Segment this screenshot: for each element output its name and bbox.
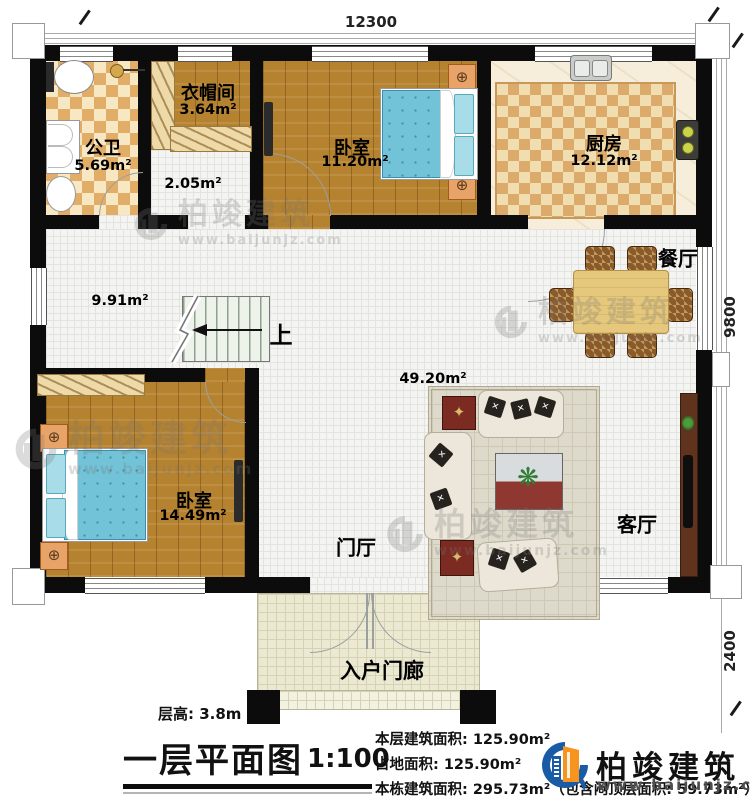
dimension-line	[716, 45, 717, 593]
plan-title: 一层平面图	[123, 733, 303, 782]
dimension-tick	[708, 7, 720, 22]
bedroom-bottom-threshold	[205, 368, 245, 382]
pillow	[454, 94, 474, 134]
floor-drain-icon	[110, 64, 124, 78]
wall-row	[330, 215, 491, 229]
window	[31, 268, 47, 325]
porch-column-left	[247, 690, 280, 724]
dimension-line	[30, 38, 712, 39]
dimension-top: 12300	[345, 13, 397, 31]
room-area-bedroom-top: 11.20m²	[321, 154, 388, 170]
plant-icon	[682, 416, 694, 430]
stove-icon	[676, 120, 699, 160]
floor-height-label: 层高: 3.8m	[158, 703, 241, 724]
basin-icon	[46, 176, 76, 212]
wall-bedroom-bottom-right	[245, 368, 259, 593]
end-table: ✦	[440, 540, 474, 576]
room-label-foyer: 门厅	[336, 532, 376, 561]
room-area-hall: 9.91m²	[91, 293, 148, 309]
title-underline	[123, 784, 372, 789]
dining-chair	[667, 288, 693, 322]
tv-icon	[264, 102, 273, 156]
room-area-bathroom: 5.69m²	[74, 158, 131, 174]
stairs-arrow-icon	[192, 324, 207, 336]
room-label-porch: 入户门廊	[340, 655, 424, 685]
exterior-platform	[710, 565, 742, 599]
entrance-door-leaf	[366, 593, 368, 649]
bath-threshold	[99, 215, 142, 229]
entrance-threshold	[310, 577, 430, 593]
wall-row	[138, 215, 188, 229]
shower-arc	[48, 146, 73, 168]
exterior-platform	[695, 23, 730, 59]
wall-row	[30, 215, 99, 229]
stairs-direction-line	[206, 329, 262, 331]
room-label-dining: 餐厅	[658, 243, 698, 272]
dining-chair	[585, 246, 615, 272]
dining-chair	[627, 246, 657, 272]
dining-chair	[585, 332, 615, 358]
room-label-living: 客厅	[617, 509, 657, 538]
dining-table	[573, 270, 669, 334]
company-logo-url: www.baijunjz.com	[597, 776, 750, 794]
floor-plan-sheet: 12300 9800 2400	[0, 0, 750, 804]
porch-step	[278, 690, 464, 710]
dimension-right-main: 9800	[721, 290, 739, 344]
porch-column-right	[460, 690, 496, 724]
company-logo-icon	[538, 738, 592, 794]
shower-arc	[48, 124, 73, 146]
exterior-platform	[12, 568, 45, 605]
toilet-icon	[54, 60, 94, 94]
toilet-tank	[46, 62, 54, 92]
sink-basin	[574, 60, 590, 77]
dimension-line	[30, 43, 712, 44]
window	[85, 578, 205, 594]
wall-right-lower	[696, 350, 712, 593]
closet-horizontal	[170, 126, 252, 152]
burner	[682, 126, 694, 138]
company-logo	[538, 738, 592, 798]
dimension-tick	[730, 701, 742, 716]
dining-chair	[549, 288, 575, 322]
plant-icon: ❋	[514, 464, 542, 492]
dimension-right-porch: 2400	[721, 624, 739, 678]
exterior-platform	[712, 352, 730, 387]
window	[312, 46, 428, 62]
end-table: ✦	[442, 396, 476, 430]
wall-left-upper	[30, 45, 46, 268]
kitchen-sink-icon	[570, 55, 612, 81]
window	[697, 247, 713, 350]
room-area-small-hall: 2.05m²	[164, 176, 221, 192]
dining-chair	[627, 332, 657, 358]
wall-bottom	[668, 577, 712, 593]
stairs-up-label: 上	[270, 316, 293, 350]
room-area-kitchen: 12.12m²	[570, 153, 637, 169]
bedroom-top-threshold	[268, 215, 330, 229]
dimension-line	[30, 33, 712, 34]
burner	[682, 142, 694, 154]
bed-mattress	[382, 90, 446, 178]
nightstand: ⊕	[40, 542, 68, 570]
entrance-door-leaf	[372, 593, 374, 649]
hall-threshold	[188, 215, 245, 229]
wall-kitchen-bottom	[604, 215, 712, 229]
sink-basin	[592, 60, 608, 77]
pillow	[454, 136, 474, 176]
pillow	[46, 498, 66, 538]
dimension-tick	[79, 10, 91, 25]
pillow	[46, 454, 66, 494]
exterior-platform	[12, 23, 45, 59]
room-area-cloakroom: 3.64m²	[179, 102, 236, 118]
title-underline-thin	[123, 792, 372, 794]
dimension-tick	[732, 33, 744, 48]
room-area-bedroom-bottom: 14.49m²	[159, 508, 226, 524]
room-area-great-room: 49.20m²	[399, 371, 466, 387]
window	[178, 46, 232, 62]
floor-drain-line	[123, 69, 145, 71]
tv-icon	[683, 455, 693, 528]
tv-icon	[234, 460, 243, 522]
wall-kitchen-bottom	[477, 215, 528, 229]
wall-bedroom-kitchen	[477, 45, 491, 229]
wall-row	[245, 215, 268, 229]
room-label-bathroom: 公卫	[85, 134, 121, 160]
wardrobe	[37, 374, 145, 396]
